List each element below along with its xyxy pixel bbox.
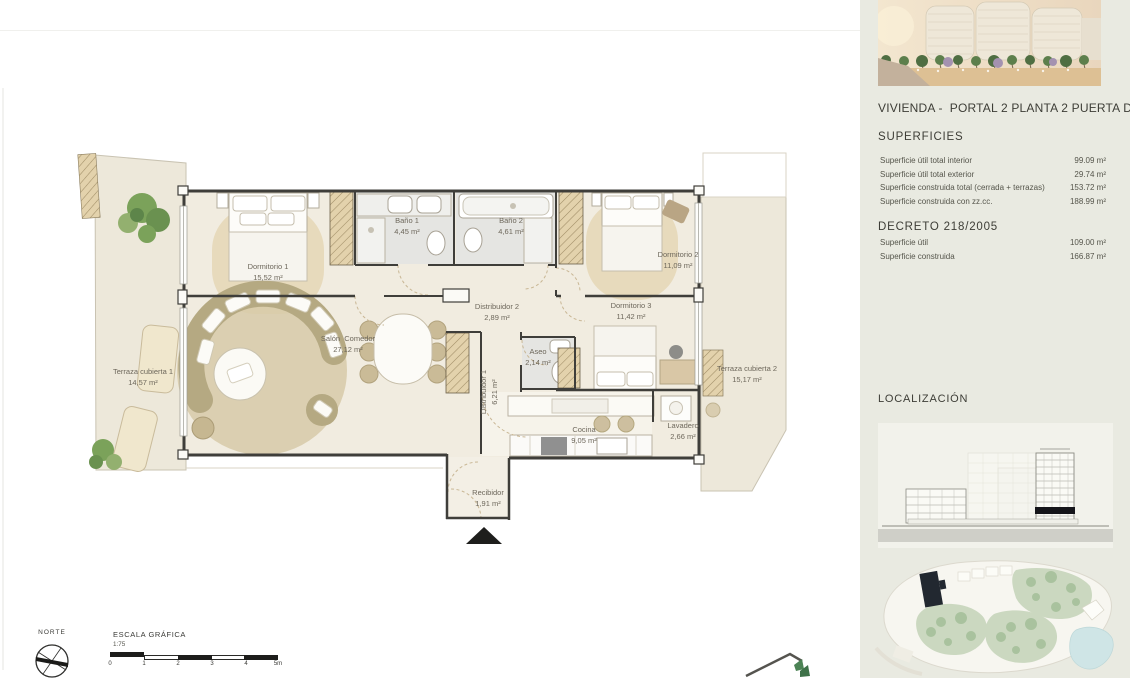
room-label-dormitorio-2: Dormitorio 211,09 m² [658,249,699,272]
site-plan-map [866,552,1124,678]
scale-tick: 5m [274,661,282,667]
wardrobe [330,192,353,265]
scale-tick: 4 [244,661,247,667]
highlighted-floor [1035,507,1075,514]
room-label-distribuidor-2: Distribuidor 22,89 m² [475,301,519,324]
table-row: Superficie construida total (cerrada + t… [880,183,1106,197]
north-compass-icon [36,645,68,677]
chair [669,345,683,359]
floorplan-area: Dormitorio 115,52 m² Baño 14,45 m² Baño … [0,0,860,678]
room-label-distribuidor-1: Distribuidor 16,21 m² [478,370,501,414]
right-tower [1035,449,1075,523]
room-label-lavadero: Lavadero2,66 m² [667,420,698,443]
room-label-aseo: Aseo2,14 m² [525,346,550,369]
floorplan-drawing [0,0,860,678]
oven [541,437,567,455]
ground [878,529,1113,542]
localizacion-heading: LOCALIZACIÓN [878,393,968,405]
room-label-terraza-2: Terraza cubierta 215,17 m² [717,363,777,386]
sink [388,196,412,213]
superficies-table: Superficie útil total interior99.09 m² S… [880,156,1106,210]
graphic-scale-bar: 0 1 2 3 4 5m [110,652,278,668]
kitchen-sink [597,438,627,454]
shower [524,218,552,263]
table-row: Superficie construida166.87 m² [880,252,1106,266]
room-label-bano-1: Baño 14,45 m² [394,215,419,238]
left-building [906,489,966,523]
room-label-cocina: Cocina9,05 m² [571,424,596,447]
project-render-photo [878,0,1101,86]
sink [417,196,441,213]
toilet [427,231,445,255]
side-table [192,417,214,439]
pool [1070,627,1114,669]
side-table [706,403,720,417]
scale-tick: 2 [176,661,179,667]
table-row: Superficie construida con zz.cc.188.99 m… [880,197,1106,211]
sheet-title: VIVIENDA - PORTAL 2 PLANTA 2 PUERTA D [878,101,1126,115]
north-label: NORTE [30,629,74,636]
floorplan-sheet: Dormitorio 115,52 m² Baño 14,45 m² Baño … [0,0,1130,678]
superficies-heading: SUPERFICIES [878,131,963,143]
entrance-arrow-icon [466,527,502,544]
toilet [464,228,482,252]
room-label-dormitorio-3: Dormitorio 311,42 m² [611,300,652,323]
room-label-recibidor: Recibidor1,91 m² [472,487,504,510]
scale-ratio: 1:75 [113,641,125,648]
scale-tick: 3 [210,661,213,667]
resort-towers [926,2,1101,60]
decreto-table: Superficie útil109.00 m² Superficie cons… [880,238,1106,265]
scale-tick: 0 [108,661,111,667]
scale-segment [178,655,212,660]
room-label-salon-comedor: Salón Comedor27,12 m² [321,333,375,356]
room-label-terraza-1: Terraza cubierta 114,57 m² [113,366,173,389]
wardrobe [559,192,583,264]
scale-segment [110,652,144,657]
hall-closet [446,333,469,393]
room-label-dormitorio-1: Dormitorio 115,52 m² [248,261,289,284]
table-row: Superficie útil total interior99.09 m² [880,156,1106,170]
table-row: Superficie útil109.00 m² [880,238,1106,252]
info-sidebar: VIVIENDA - PORTAL 2 PLANTA 2 PUERTA D SU… [860,0,1130,678]
stool [618,416,634,432]
scale-tick: 1 [142,661,145,667]
decreto-heading: DECRETO 218/2005 [878,221,998,233]
developer-logo [746,654,810,677]
desk [660,360,698,384]
scale-segment [244,655,278,660]
room-label-bano-2: Baño 24,61 m² [498,215,523,238]
scale-heading: ESCALA GRÁFICA [113,630,186,639]
elevation-drawing [878,423,1113,548]
wardrobe [558,348,580,388]
table-row: Superficie útil total exterior29.74 m² [880,170,1106,184]
shower [357,218,385,263]
